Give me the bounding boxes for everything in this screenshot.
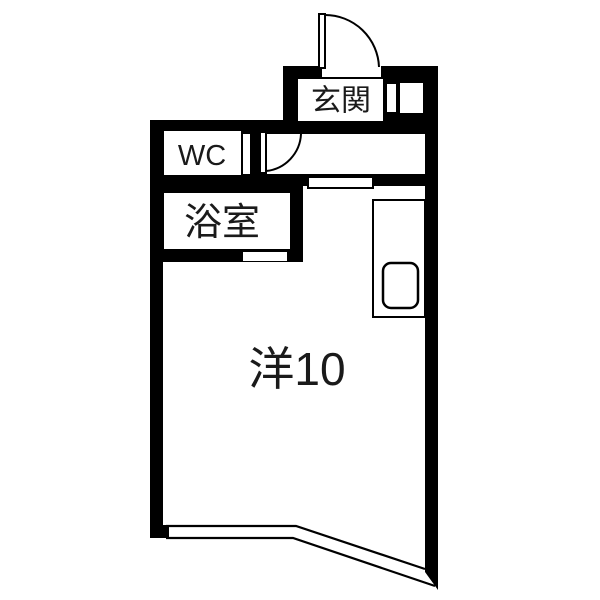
floor-plan: 玄関 WC 浴室 洋10 <box>0 0 600 600</box>
window-outer-line <box>166 538 435 586</box>
bathroom-right-wall <box>291 174 303 262</box>
entrance-label: 玄関 <box>311 85 371 118</box>
window-inner-line <box>166 526 425 569</box>
bay-window <box>166 526 435 586</box>
bathroom-label: 浴室 <box>184 202 260 244</box>
wc-door-leaf <box>260 132 266 173</box>
sink-basin <box>383 263 418 308</box>
wc-door-swing-arc <box>266 134 301 171</box>
floor-plan-canvas: 玄関 WC 浴室 洋10 <box>0 0 600 600</box>
bathroom-door-opening <box>243 252 287 261</box>
kitchen-unit <box>373 200 425 317</box>
shoe-cabinet-large <box>399 82 424 114</box>
main-room-label: 洋10 <box>248 343 345 395</box>
hallway <box>297 134 425 174</box>
entrance-door-leaf <box>319 14 325 68</box>
toilet-label: WC <box>178 140 226 172</box>
right-outer-wall <box>425 66 438 590</box>
entrance-door-swing-arc <box>325 15 379 67</box>
main-room-entry-opening <box>308 177 373 188</box>
shoe-cabinet-small <box>386 83 397 113</box>
